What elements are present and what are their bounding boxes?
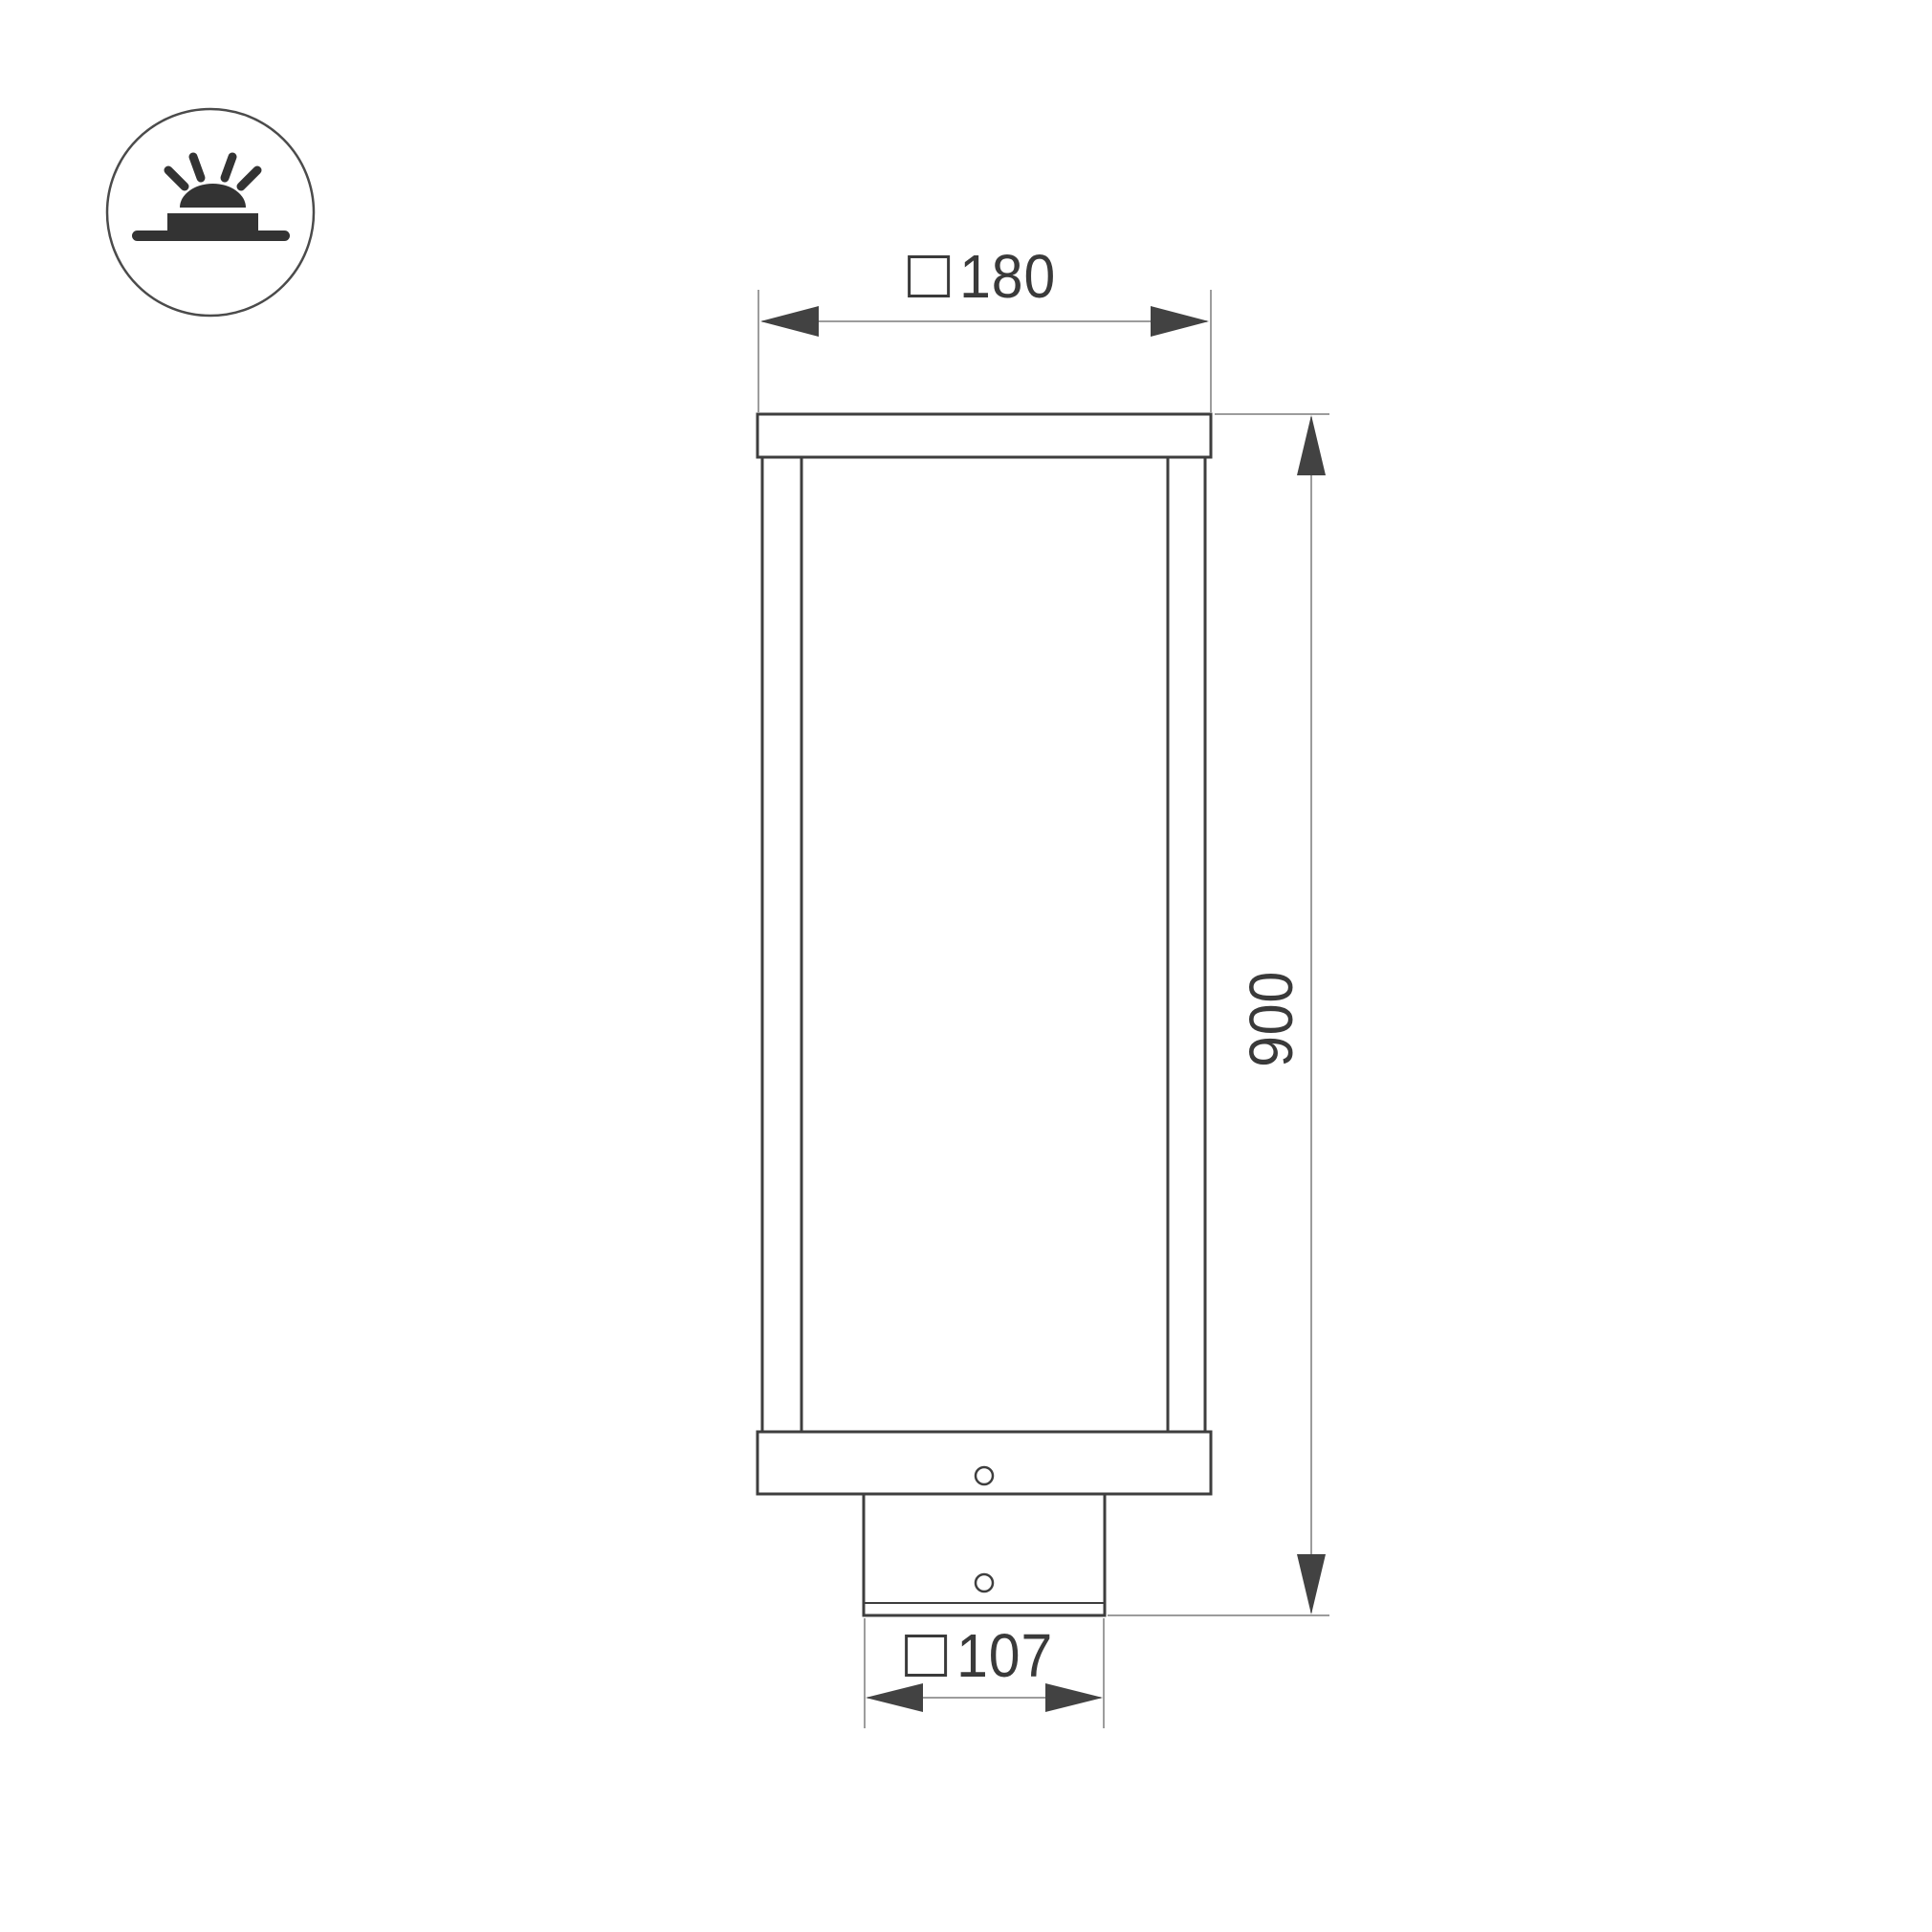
screw-hole-top	[976, 1467, 993, 1484]
screw-hole-bottom	[976, 1574, 993, 1592]
lamp-body	[762, 457, 1205, 1432]
surface-mounted-light-icon	[107, 109, 314, 316]
square-section-symbol	[905, 1635, 947, 1677]
dimension-label-base-width: 107	[905, 1625, 1062, 1686]
dimension-value: 900	[1240, 971, 1302, 1067]
square-section-symbol	[908, 255, 950, 297]
mounting-post	[864, 1494, 1105, 1615]
arrow-left-icon	[760, 306, 819, 337]
arrow-down-icon	[1297, 1554, 1326, 1614]
dimension-value: 180	[959, 246, 1056, 307]
ground-line-icon	[132, 231, 290, 241]
drawing-canvas: 180 900 107	[0, 0, 1932, 1932]
arrow-right-icon	[1151, 306, 1209, 337]
arrow-left-icon	[866, 1683, 923, 1712]
dimension-label-height: 900	[1240, 962, 1302, 1067]
dimension-label-top-width: 180	[908, 246, 1065, 307]
lamp-base-icon	[167, 213, 258, 232]
lamp-dome-icon	[180, 184, 246, 208]
dimension-value: 107	[956, 1625, 1053, 1686]
top-cap	[757, 414, 1211, 457]
luminaire-outline	[757, 414, 1211, 1615]
light-rays-icon	[168, 157, 257, 187]
icon-circle	[107, 109, 314, 316]
arrow-up-icon	[1297, 415, 1326, 475]
arrow-right-icon	[1045, 1683, 1103, 1712]
